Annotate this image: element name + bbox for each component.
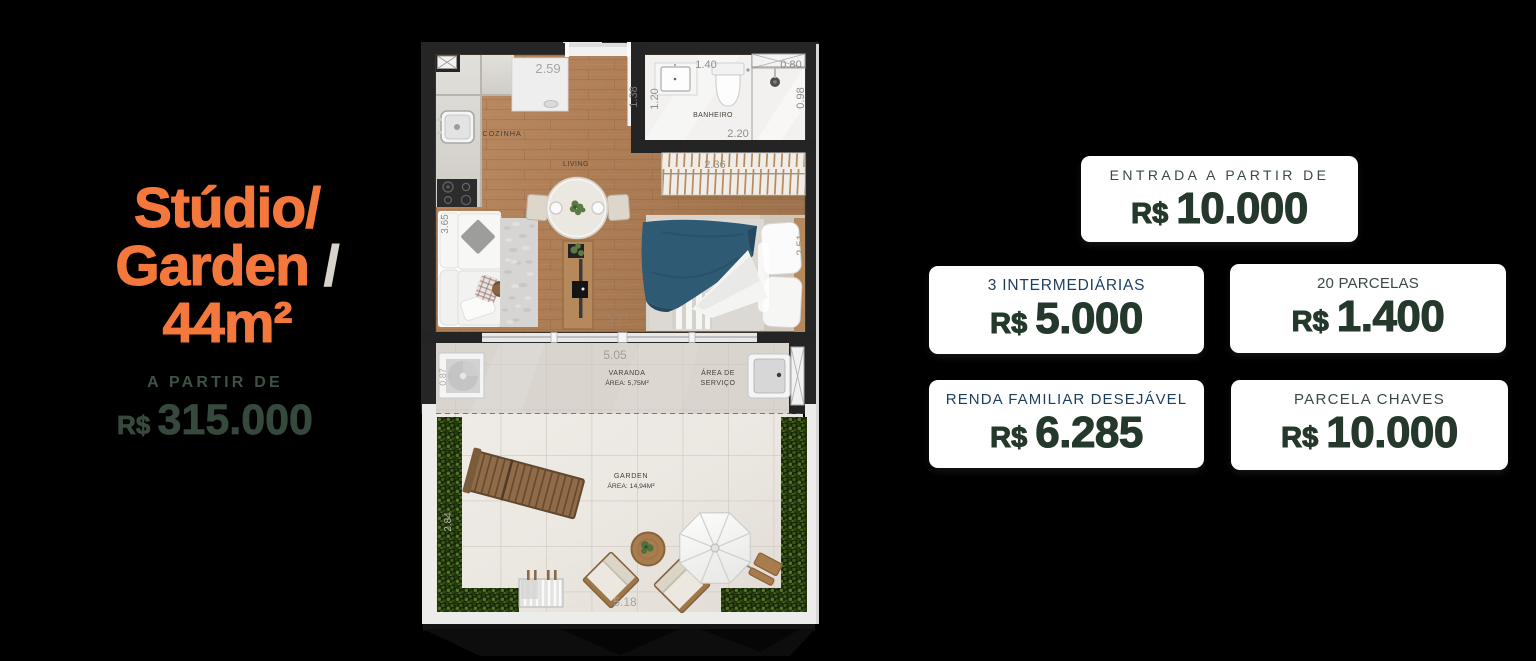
svg-text:BANHEIRO: BANHEIRO (693, 112, 733, 119)
svg-text:5.27: 5.27 (607, 313, 628, 325)
svg-text:COZINHA: COZINHA (482, 129, 521, 138)
svg-text:2.20: 2.20 (727, 128, 748, 140)
svg-text:ÁREA: 14,94M²: ÁREA: 14,94M² (607, 481, 655, 490)
svg-text:GARDEN: GARDEN (614, 471, 648, 480)
svg-text:5.18: 5.18 (613, 595, 637, 609)
svg-text:VARANDA: VARANDA (609, 370, 646, 377)
svg-text:5.05: 5.05 (603, 348, 627, 362)
svg-text:1.38: 1.38 (628, 86, 640, 107)
svg-text:2.59: 2.59 (535, 61, 560, 76)
svg-text:2.36: 2.36 (704, 159, 725, 171)
svg-text:2.51: 2.51 (795, 234, 807, 255)
svg-text:1.40: 1.40 (695, 59, 716, 71)
svg-text:0.87: 0.87 (438, 368, 448, 386)
svg-text:ÁREA DE: ÁREA DE (701, 368, 735, 377)
svg-text:ÁREA: 5,75M²: ÁREA: 5,75M² (605, 378, 649, 387)
svg-text:SERVIÇO: SERVIÇO (701, 380, 736, 387)
svg-text:1.20: 1.20 (649, 88, 661, 109)
svg-text:3.65: 3.65 (440, 214, 451, 234)
svg-text:2.84: 2.84 (443, 512, 454, 532)
svg-text:0.80: 0.80 (780, 59, 801, 71)
svg-text:LIVING: LIVING (563, 161, 589, 168)
svg-text:0.98: 0.98 (795, 87, 807, 108)
